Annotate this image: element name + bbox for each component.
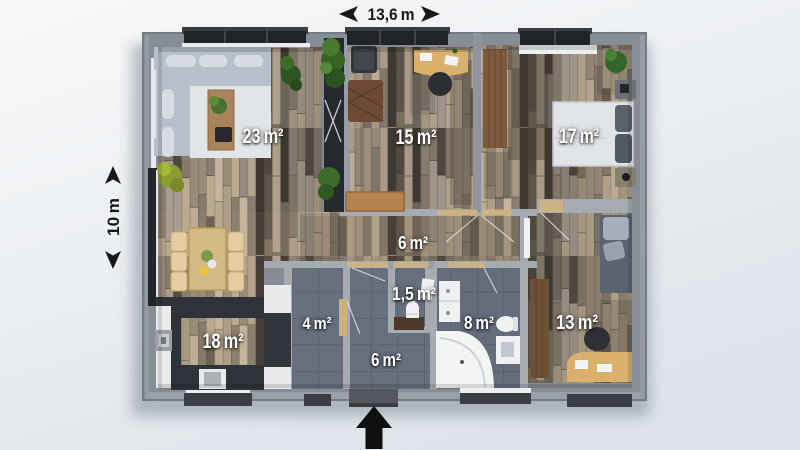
svg-text:1,5 m²: 1,5 m² (392, 284, 436, 304)
svg-text:6 m²: 6 m² (371, 350, 401, 370)
svg-text:17 m²: 17 m² (559, 125, 599, 148)
svg-text:23 m²: 23 m² (243, 125, 284, 148)
svg-text:6 m²: 6 m² (398, 233, 428, 253)
svg-text:13 m²: 13 m² (556, 312, 598, 334)
svg-text:10 m: 10 m (104, 198, 123, 236)
svg-text:8 m²: 8 m² (464, 313, 494, 333)
svg-text:4 m²: 4 m² (303, 314, 332, 333)
svg-text:18 m²: 18 m² (203, 330, 244, 353)
svg-text:13,6 m: 13,6 m (368, 5, 415, 24)
svg-text:15 m²: 15 m² (396, 126, 437, 149)
